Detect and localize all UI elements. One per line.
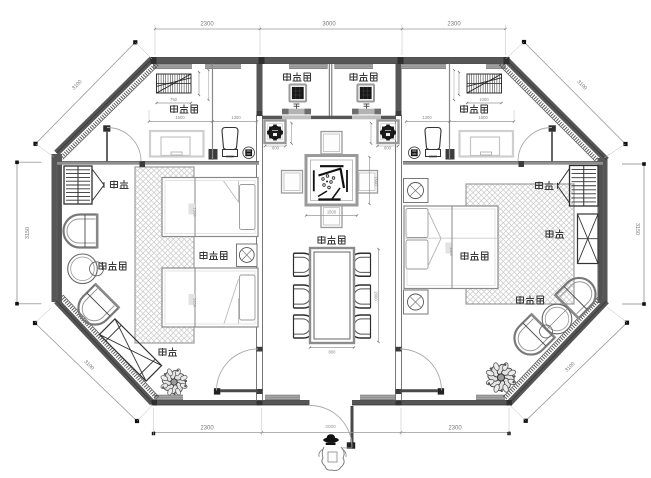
svg-text:1200: 1200 — [193, 208, 198, 218]
svg-text:1200: 1200 — [193, 298, 198, 308]
svg-text:800: 800 — [329, 350, 337, 355]
svg-text:1500: 1500 — [175, 115, 185, 120]
svg-text:2300: 2300 — [200, 426, 214, 432]
svg-text:2300: 2300 — [200, 22, 214, 28]
svg-text:3150: 3150 — [634, 223, 640, 235]
svg-text:3150: 3150 — [25, 227, 31, 239]
svg-text:2300: 2300 — [447, 22, 461, 28]
svg-text:1300: 1300 — [231, 115, 241, 120]
svg-text:1500: 1500 — [478, 115, 488, 120]
svg-text:1500: 1500 — [374, 176, 379, 186]
svg-text:2300: 2300 — [448, 426, 462, 432]
svg-text:3000: 3000 — [322, 22, 336, 28]
svg-text:750: 750 — [170, 97, 178, 102]
svg-text:1500: 1500 — [449, 247, 454, 257]
svg-text:3000: 3000 — [325, 424, 336, 430]
svg-text:1500: 1500 — [327, 210, 337, 215]
svg-text:2000: 2000 — [374, 291, 379, 301]
svg-text:1300: 1300 — [422, 115, 432, 120]
svg-text:1000: 1000 — [479, 97, 489, 102]
